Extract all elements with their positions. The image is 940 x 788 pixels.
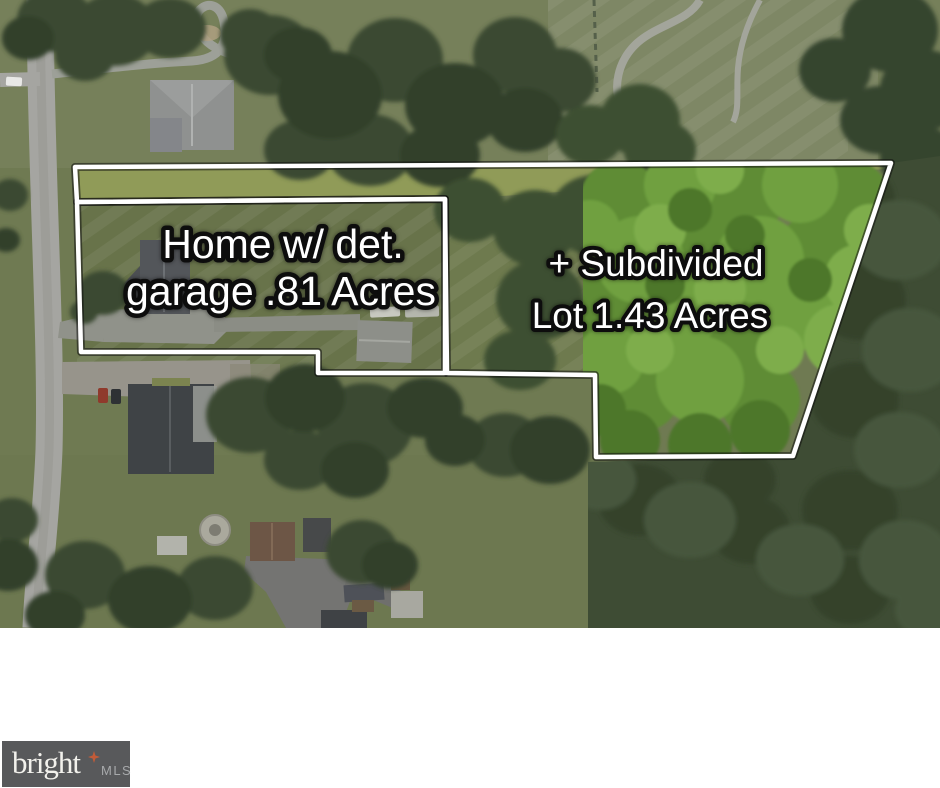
annotation-home-line1: Home w/ det. xyxy=(162,221,404,267)
annotation-home-line2: garage .81 Acres xyxy=(126,268,436,314)
annotation-subdivided-line1: + Subdivided xyxy=(549,243,764,284)
house-top-left xyxy=(150,80,234,152)
sparkle-icon xyxy=(88,751,100,763)
brightmls-watermark: bright MLS xyxy=(2,741,130,787)
footer-whitespace xyxy=(0,628,940,788)
garage xyxy=(356,320,412,363)
house-below-lot xyxy=(128,378,217,474)
brightmls-suffix-text: MLS xyxy=(101,763,132,778)
listing-photo-page: Home w/ det. garage .81 Acres + Subdivid… xyxy=(0,0,940,788)
annotation-subdivided-line2: Lot 1.43 Acres xyxy=(532,295,769,336)
brightmls-brand-text: bright xyxy=(12,747,80,779)
aerial-photo: Home w/ det. garage .81 Acres + Subdivid… xyxy=(0,0,940,628)
